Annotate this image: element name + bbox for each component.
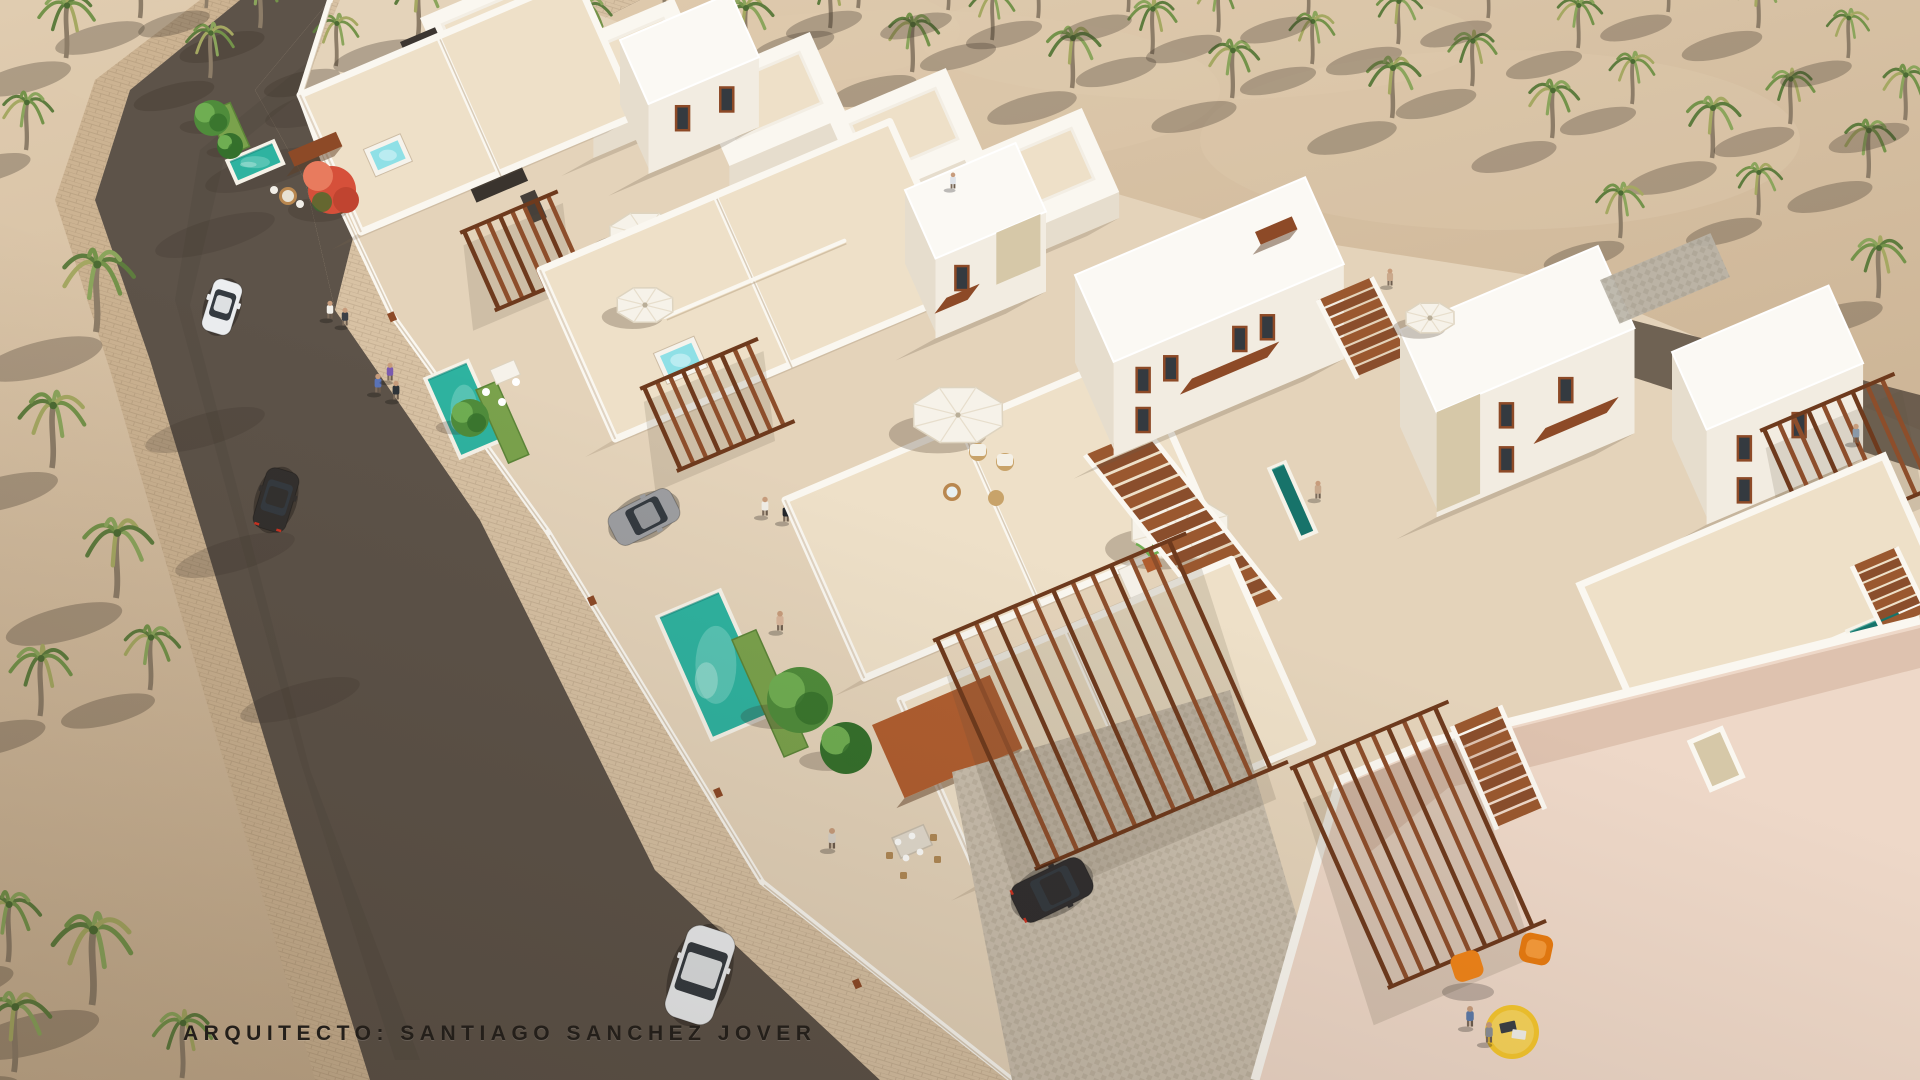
architectural-render: ARQUITECTO: SANTIAGO SANCHEZ JOVER xyxy=(0,0,1920,1080)
scene-render xyxy=(0,0,1920,1080)
architect-caption: ARQUITECTO: SANTIAGO SANCHEZ JOVER xyxy=(183,1022,816,1046)
